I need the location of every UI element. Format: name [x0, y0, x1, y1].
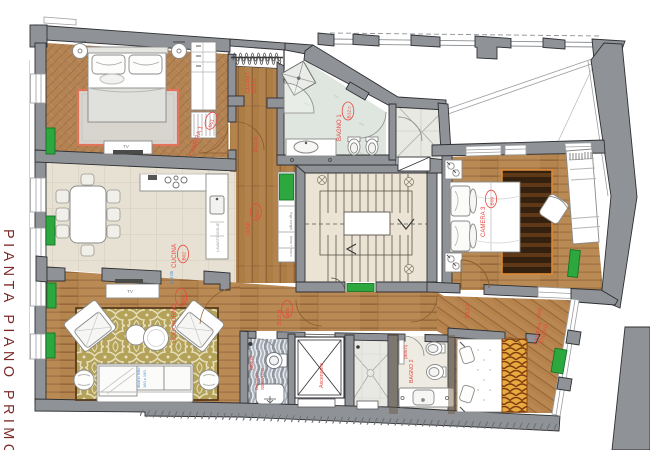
- svg-text:B12.e: B12.e: [465, 303, 471, 318]
- svg-text:(B06.g): (B06.g): [249, 355, 254, 370]
- svg-text:ht 3.05: ht 3.05: [169, 270, 174, 284]
- svg-text:B09: B09: [490, 197, 496, 206]
- svg-text:TV: TV: [127, 289, 133, 294]
- svg-text:160 x 190: 160 x 190: [142, 370, 147, 388]
- svg-text:BAGNO: BAGNO: [254, 372, 260, 390]
- svg-text:DISP.: DISP.: [246, 220, 252, 235]
- svg-text:BAGNO 1: BAGNO 1: [337, 114, 343, 141]
- svg-text:SOGGIORNO: SOGGIORNO: [171, 303, 178, 343]
- svg-text:CAMERA 3: CAMERA 3: [481, 206, 487, 237]
- svg-text:forno + micro: forno + micro: [289, 236, 293, 257]
- svg-text:CUCINA: CUCINA: [171, 243, 178, 268]
- svg-text:LAVASTOVIGLIE: LAVASTOVIGLIE: [216, 222, 220, 252]
- svg-text:B12.b: B12.b: [252, 79, 258, 93]
- svg-text:SERVIZIO: SERVIZIO: [260, 367, 266, 390]
- svg-text:B04: B04: [285, 307, 291, 316]
- svg-text:B02: B02: [182, 252, 188, 261]
- svg-text:TV: TV: [123, 144, 129, 149]
- svg-text:B12.a: B12.a: [253, 136, 259, 152]
- svg-text:BAGNO 2: BAGNO 2: [409, 359, 415, 383]
- svg-text:B03: B03: [181, 295, 187, 304]
- svg-text:B12: B12: [254, 209, 260, 218]
- svg-text:PIANTA PIANO PRIMO: PIANTA PIANO PRIMO: [0, 229, 16, 450]
- svg-text:frigo congel.: frigo congel.: [289, 212, 293, 231]
- svg-text:Ascensore: Ascensore: [319, 363, 325, 388]
- svg-text:(B06.h): (B06.h): [403, 344, 408, 359]
- svg-text:B12.c: B12.c: [347, 106, 353, 119]
- svg-text:CLOSET: CLOSET: [245, 71, 251, 93]
- svg-text:divano letto: divano letto: [136, 367, 141, 388]
